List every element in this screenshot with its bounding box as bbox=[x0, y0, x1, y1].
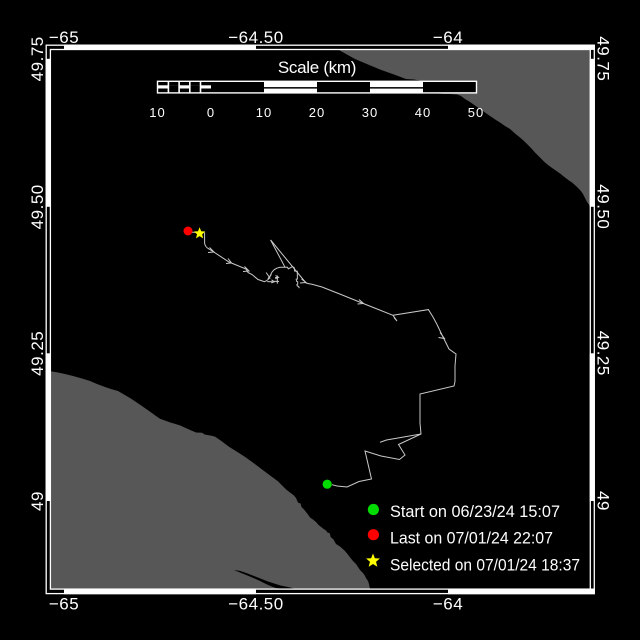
svg-text:49: 49 bbox=[28, 491, 47, 511]
svg-text:49.75: 49.75 bbox=[28, 36, 47, 81]
svg-text:Start on 06/23/24 15:07: Start on 06/23/24 15:07 bbox=[390, 502, 560, 521]
svg-text:20: 20 bbox=[309, 105, 325, 120]
svg-text:49.75: 49.75 bbox=[593, 36, 612, 81]
svg-text:−65: −65 bbox=[49, 28, 79, 47]
svg-text:Selected on 07/01/24 18:37: Selected on 07/01/24 18:37 bbox=[390, 556, 580, 575]
svg-text:−64.50: −64.50 bbox=[228, 594, 283, 613]
svg-text:49.25: 49.25 bbox=[593, 331, 612, 376]
svg-text:50: 50 bbox=[468, 105, 484, 120]
svg-text:Scale (km): Scale (km) bbox=[278, 58, 356, 77]
svg-text:49: 49 bbox=[593, 491, 612, 511]
svg-text:49.50: 49.50 bbox=[593, 184, 612, 229]
svg-text:0: 0 bbox=[207, 105, 215, 120]
svg-text:−65: −65 bbox=[49, 594, 79, 613]
svg-text:40: 40 bbox=[415, 105, 431, 120]
svg-text:10: 10 bbox=[149, 105, 165, 120]
svg-text:−64: −64 bbox=[433, 28, 463, 47]
svg-text:30: 30 bbox=[362, 105, 378, 120]
svg-text:−64.50: −64.50 bbox=[228, 28, 283, 47]
svg-text:49.25: 49.25 bbox=[28, 331, 47, 376]
svg-text:Last on 07/01/24 22:07: Last on 07/01/24 22:07 bbox=[390, 529, 553, 548]
svg-text:10: 10 bbox=[256, 105, 272, 120]
svg-text:−64: −64 bbox=[433, 594, 463, 613]
svg-text:49.50: 49.50 bbox=[28, 184, 47, 229]
